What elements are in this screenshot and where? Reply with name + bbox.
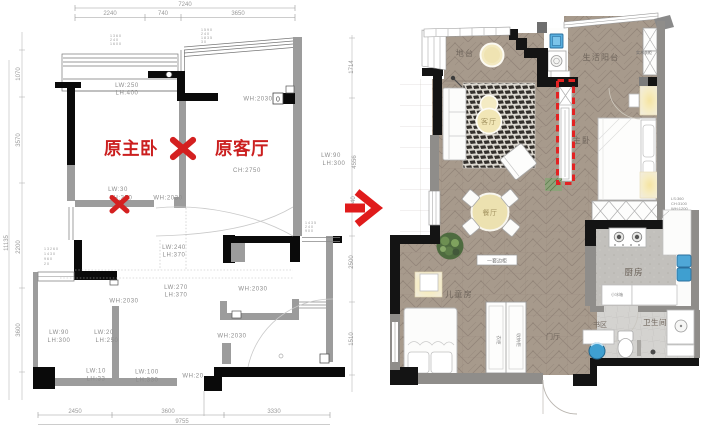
svg-text:1 6 0 0: 1 6 0 0 — [110, 42, 121, 46]
svg-text:LW:90: LW:90 — [49, 330, 69, 336]
svg-text:CH:2750: CH:2750 — [233, 168, 261, 174]
svg-text:厨房: 厨房 — [624, 267, 643, 277]
svg-text:1510: 1510 — [349, 332, 355, 346]
svg-text:LH:330: LH:330 — [136, 378, 159, 384]
svg-text:1714: 1714 — [349, 60, 355, 74]
svg-text:WH:2030: WH:2030 — [153, 196, 182, 202]
svg-text:1 3 2 6 0: 1 3 2 6 0 — [44, 247, 58, 251]
svg-text:LH:400: LH:400 — [116, 91, 139, 97]
svg-text:3600: 3600 — [16, 323, 22, 337]
svg-text:2500: 2500 — [349, 255, 355, 269]
svg-text:LW:90: LW:90 — [321, 153, 341, 159]
svg-text:1070: 1070 — [16, 67, 22, 81]
svg-text:WH:2030: WH:2030 — [109, 299, 138, 305]
svg-text:4556: 4556 — [352, 155, 358, 169]
svg-text:LH:370: LH:370 — [163, 253, 186, 259]
svg-text:LW:30: LW:30 — [108, 187, 128, 193]
svg-text:2 0: 2 0 — [44, 262, 49, 266]
svg-text:2450: 2450 — [68, 409, 82, 415]
svg-text:LW:250: LW:250 — [115, 83, 139, 89]
svg-text:门厅: 门厅 — [546, 332, 560, 341]
svg-text:LW:270: LW:270 — [164, 285, 188, 291]
svg-text:WH:1200: WH:1200 — [671, 206, 688, 211]
svg-text:WH:2030: WH:2030 — [217, 334, 246, 340]
svg-text:客厅: 客厅 — [481, 117, 497, 126]
svg-text:原客厅: 原客厅 — [215, 139, 269, 159]
svg-text:0: 0 — [276, 97, 280, 104]
svg-text:WH:2030: WH:2030 — [238, 287, 267, 293]
svg-text:LW:240: LW:240 — [162, 245, 186, 251]
svg-text:3600: 3600 — [161, 409, 175, 415]
svg-text:11135: 11135 — [4, 234, 10, 250]
svg-text:2240: 2240 — [103, 11, 117, 17]
svg-text:卫生间: 卫生间 — [643, 317, 667, 327]
svg-text:LW:20: LW:20 — [94, 330, 114, 336]
svg-text:LH:370: LH:370 — [165, 293, 188, 299]
svg-text:WH:2030: WH:2030 — [243, 97, 272, 103]
svg-text:LH:300: LH:300 — [48, 338, 71, 344]
svg-text:3330: 3330 — [267, 409, 281, 415]
svg-text:实木衣柜: 实木衣柜 — [636, 49, 652, 55]
svg-text:LH:250: LH:250 — [96, 338, 119, 344]
svg-text:收纳柜: 收纳柜 — [515, 333, 522, 347]
svg-text:WH:20: WH:20 — [182, 374, 203, 380]
svg-text:地台: 地台 — [456, 48, 474, 58]
svg-text:2200: 2200 — [16, 240, 22, 254]
svg-text:儿童房: 儿童房 — [445, 289, 473, 299]
svg-text:7240: 7240 — [178, 2, 192, 8]
svg-text:3570: 3570 — [16, 133, 22, 147]
svg-text:9 0 0: 9 0 0 — [305, 229, 313, 233]
svg-text:9 6 0: 9 6 0 — [44, 257, 52, 261]
svg-text:小冰箱: 小冰箱 — [611, 291, 623, 297]
svg-text:一套边柜: 一套边柜 — [487, 258, 507, 265]
svg-text:生活阳台: 生活阳台 — [583, 52, 620, 62]
svg-text:3 0: 3 0 — [201, 40, 206, 44]
svg-text:1 4 3 0: 1 4 3 0 — [44, 252, 55, 256]
svg-text:LW:10: LW:10 — [86, 369, 106, 375]
svg-text:740: 740 — [158, 11, 169, 17]
svg-text:原主卧: 原主卧 — [104, 139, 158, 159]
svg-text:主卧: 主卧 — [573, 135, 591, 145]
svg-text:衣柜: 衣柜 — [495, 336, 502, 345]
svg-text:书区: 书区 — [593, 320, 607, 329]
svg-text:LH:300: LH:300 — [323, 161, 346, 167]
svg-text:餐厅: 餐厅 — [483, 208, 498, 217]
svg-text:9755: 9755 — [175, 419, 189, 425]
svg-text:LH:33: LH:33 — [86, 377, 105, 383]
svg-text:LW:100: LW:100 — [135, 370, 159, 376]
svg-text:3650: 3650 — [231, 11, 245, 17]
